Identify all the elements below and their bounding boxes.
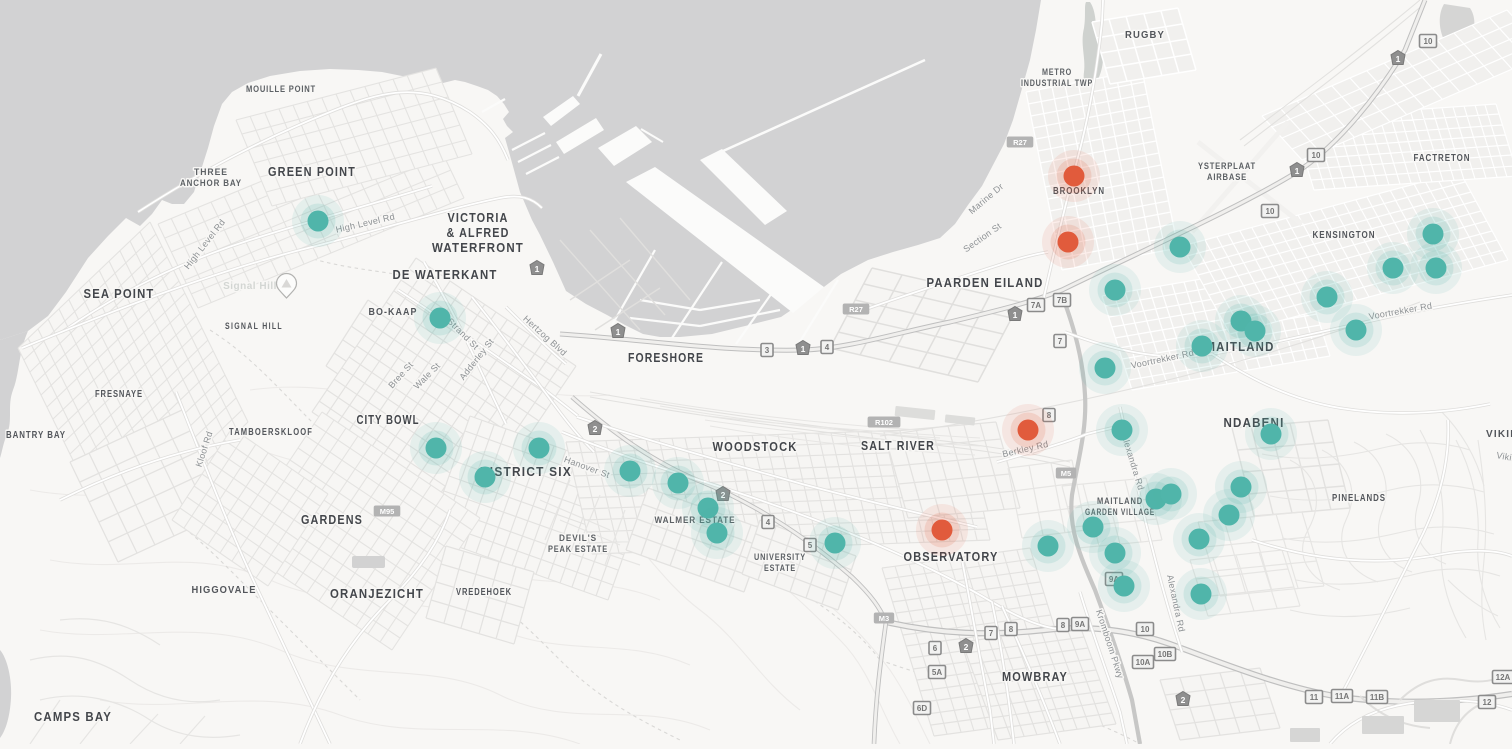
- svg-text:2: 2: [964, 642, 969, 652]
- svg-text:R27: R27: [1013, 138, 1027, 147]
- svg-text:6D: 6D: [917, 704, 927, 713]
- svg-text:BO-KAAP: BO-KAAP: [369, 307, 418, 318]
- svg-text:THREE: THREE: [194, 167, 228, 177]
- svg-text:GARDENS: GARDENS: [301, 513, 363, 527]
- svg-text:PAARDEN EILAND: PAARDEN EILAND: [927, 276, 1044, 290]
- svg-text:M3: M3: [879, 614, 889, 623]
- svg-text:UNIVERSITY: UNIVERSITY: [754, 552, 806, 562]
- svg-text:3: 3: [765, 346, 770, 355]
- svg-text:SALT RIVER: SALT RIVER: [861, 439, 935, 453]
- svg-text:PINELANDS: PINELANDS: [1332, 493, 1386, 504]
- svg-text:FRESNAYE: FRESNAYE: [95, 389, 143, 400]
- svg-text:1: 1: [1295, 166, 1300, 176]
- svg-text:CAMPS BAY: CAMPS BAY: [34, 710, 112, 724]
- svg-text:MOWBRAY: MOWBRAY: [1002, 670, 1068, 684]
- svg-text:M5: M5: [1061, 469, 1071, 478]
- svg-text:DE WATERKANT: DE WATERKANT: [393, 268, 498, 282]
- svg-text:KENSINGTON: KENSINGTON: [1313, 230, 1376, 241]
- svg-text:WOODSTOCK: WOODSTOCK: [713, 440, 798, 454]
- svg-text:1: 1: [801, 344, 806, 354]
- svg-text:7B: 7B: [1057, 296, 1067, 305]
- svg-text:BANTRY BAY: BANTRY BAY: [6, 430, 66, 441]
- svg-text:SEA POINT: SEA POINT: [84, 287, 155, 301]
- svg-text:TAMBOERSKLOOF: TAMBOERSKLOOF: [229, 427, 313, 438]
- svg-text:WATERFRONT: WATERFRONT: [432, 241, 524, 255]
- svg-text:1: 1: [535, 264, 540, 274]
- svg-text:DEVIL'S: DEVIL'S: [559, 533, 597, 543]
- svg-text:6: 6: [933, 644, 938, 653]
- svg-text:VIKING: VIKING: [1486, 429, 1512, 440]
- svg-text:GREEN POINT: GREEN POINT: [268, 165, 356, 179]
- svg-text:& ALFRED: & ALFRED: [447, 226, 510, 240]
- svg-text:CITY BOWL: CITY BOWL: [357, 413, 420, 427]
- svg-text:11: 11: [1310, 693, 1319, 702]
- svg-text:10B: 10B: [1158, 650, 1173, 659]
- svg-text:YSTERPLAAT: YSTERPLAAT: [1198, 161, 1256, 172]
- svg-text:12: 12: [1483, 698, 1492, 707]
- svg-text:10: 10: [1141, 625, 1150, 634]
- svg-text:1: 1: [1013, 310, 1018, 320]
- svg-text:7: 7: [989, 629, 994, 638]
- svg-text:R102: R102: [875, 418, 893, 427]
- svg-text:11A: 11A: [1335, 692, 1349, 701]
- svg-text:11B: 11B: [1370, 693, 1384, 702]
- svg-text:8: 8: [1061, 621, 1066, 630]
- svg-text:4: 4: [825, 343, 830, 352]
- svg-text:1: 1: [616, 327, 621, 337]
- svg-text:10: 10: [1266, 207, 1275, 216]
- svg-text:7A: 7A: [1031, 301, 1041, 310]
- svg-text:Signal Hill: Signal Hill: [223, 281, 277, 292]
- svg-text:RUGBY: RUGBY: [1125, 30, 1165, 41]
- svg-text:4: 4: [766, 518, 771, 527]
- svg-text:HIGGOVALE: HIGGOVALE: [192, 584, 257, 596]
- svg-text:10A: 10A: [1136, 658, 1151, 667]
- svg-text:PEAK ESTATE: PEAK ESTATE: [548, 544, 608, 554]
- svg-text:MOUILLE POINT: MOUILLE POINT: [246, 84, 316, 95]
- svg-text:AIRBASE: AIRBASE: [1207, 172, 1247, 183]
- svg-text:10: 10: [1312, 151, 1321, 160]
- svg-text:R27: R27: [849, 305, 863, 314]
- svg-text:12A: 12A: [1496, 673, 1511, 682]
- svg-text:ANCHOR BAY: ANCHOR BAY: [180, 178, 242, 188]
- svg-text:7: 7: [1058, 337, 1063, 346]
- svg-text:ESTATE: ESTATE: [764, 563, 796, 573]
- svg-text:1: 1: [1396, 54, 1401, 64]
- svg-text:METRO: METRO: [1042, 67, 1072, 77]
- svg-text:VICTORIA: VICTORIA: [448, 211, 509, 225]
- svg-text:2: 2: [1181, 695, 1186, 705]
- svg-text:10: 10: [1424, 37, 1433, 46]
- svg-text:FORESHORE: FORESHORE: [628, 351, 704, 365]
- svg-text:8: 8: [1009, 625, 1014, 634]
- svg-text:M95: M95: [380, 507, 395, 516]
- svg-text:ORANJEZICHT: ORANJEZICHT: [330, 587, 424, 601]
- svg-text:9A: 9A: [1075, 620, 1085, 629]
- svg-text:FACTRETON: FACTRETON: [1414, 153, 1471, 164]
- svg-text:5A: 5A: [932, 668, 942, 677]
- svg-text:INDUSTRIAL TWP: INDUSTRIAL TWP: [1021, 78, 1093, 88]
- svg-text:2: 2: [593, 424, 598, 434]
- svg-text:VREDEHOEK: VREDEHOEK: [456, 587, 512, 598]
- svg-text:SIGNAL HILL: SIGNAL HILL: [225, 321, 283, 332]
